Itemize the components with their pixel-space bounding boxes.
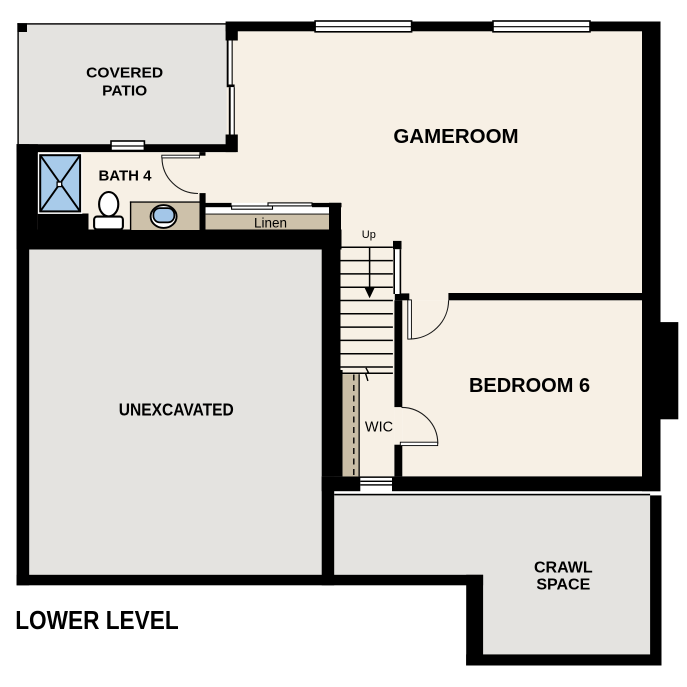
svg-text:GAMEROOM: GAMEROOM [393, 125, 518, 148]
svg-text:COVERED: COVERED [86, 65, 163, 82]
svg-text:CRAWL: CRAWL [534, 559, 593, 576]
svg-text:SPACE: SPACE [536, 576, 590, 593]
svg-text:PATIO: PATIO [102, 82, 147, 99]
svg-text:LOWER LEVEL: LOWER LEVEL [15, 605, 179, 635]
svg-text:BATH 4: BATH 4 [98, 168, 152, 185]
svg-text:UNEXCAVATED: UNEXCAVATED [119, 400, 234, 420]
svg-text:Up: Up [362, 229, 376, 241]
svg-text:WIC: WIC [365, 420, 393, 436]
svg-text:BEDROOM 6: BEDROOM 6 [469, 375, 590, 397]
svg-text:Linen: Linen [254, 215, 287, 230]
